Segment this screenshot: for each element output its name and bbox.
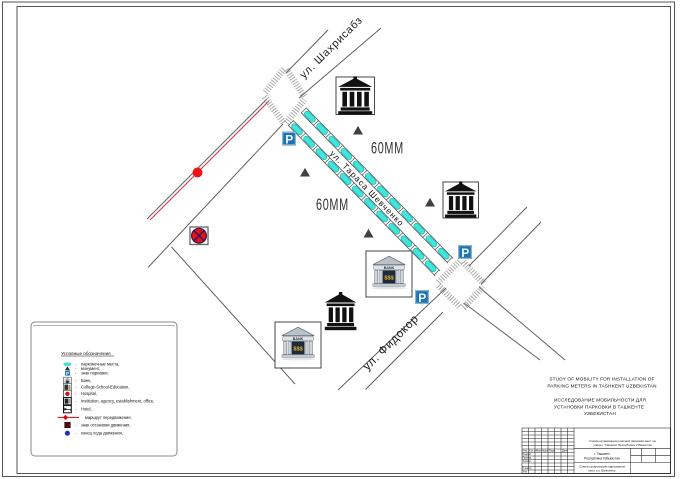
svg-text:мест ул. Шевченко: мест ул. Шевченко — [589, 469, 616, 473]
svg-text:Т.контр.: Т.контр. — [523, 460, 532, 463]
svg-text:УСТАНОВКИ ПАРКОВКИ В ТАШК: УСТАНОВКИ ПАРКОВКИ В ТАШКЕНТЕ — [554, 405, 644, 410]
svg-text:PARKING METERS IN TASHKENT: PARKING METERS IN TASHKENT UZBEKISTAN — [547, 384, 656, 389]
svg-text:STUDY OF MOBILITY FOR INST: STUDY OF MOBILITY FOR INSTALLATION OF — [549, 377, 654, 382]
svg-text:г. Ташкент: г. Ташкент — [594, 452, 610, 456]
svg-text:Банк,: Банк, — [81, 378, 91, 383]
svg-text:Institution, agency, establi: Institution, agency, establishment, offi… — [81, 399, 154, 404]
svg-text:60MM: 60MM — [371, 138, 404, 157]
svg-text:ИССЛЕДОВАНИЕ МОБИЛЬНОСТИ ДЛЯ: ИССЛЕДОВАНИЕ МОБИЛЬНОСТИ ДЛЯ — [554, 398, 646, 403]
svg-text:знак остановки движения,: знак остановки движения, — [81, 423, 130, 428]
svg-text:60MM: 60MM — [316, 195, 349, 214]
svg-text:Hotel,: Hotel, — [81, 407, 92, 412]
svg-text:УЗБЕКИСТАН: УЗБЕКИСТАН — [584, 411, 616, 416]
svg-text:Дата: Дата — [562, 449, 568, 452]
svg-text:P: P — [66, 371, 69, 376]
svg-text:конец хода движения,: конец хода движения, — [81, 431, 123, 436]
svg-text:знак парковки,: знак парковки, — [81, 371, 109, 376]
svg-text:улице г. Ташкент Республика Уз: улице г. Ташкент Республика Узбекистан — [593, 443, 652, 447]
svg-text:Условные обозначения: Условные обозначения — [61, 351, 111, 356]
svg-text:Изм.: Изм. — [523, 449, 529, 452]
svg-text:College-School-Education,: College-School-Education, — [81, 385, 129, 390]
svg-text:Утв.: Утв. — [523, 470, 528, 473]
svg-text:Hospital,: Hospital, — [81, 391, 97, 396]
svg-text:маршрут передвижения,: маршрут передвижения, — [85, 415, 132, 420]
svg-text:Республика Узбекистан: Республика Узбекистан — [584, 457, 620, 461]
svg-text:Подп.: Подп. — [549, 449, 556, 452]
